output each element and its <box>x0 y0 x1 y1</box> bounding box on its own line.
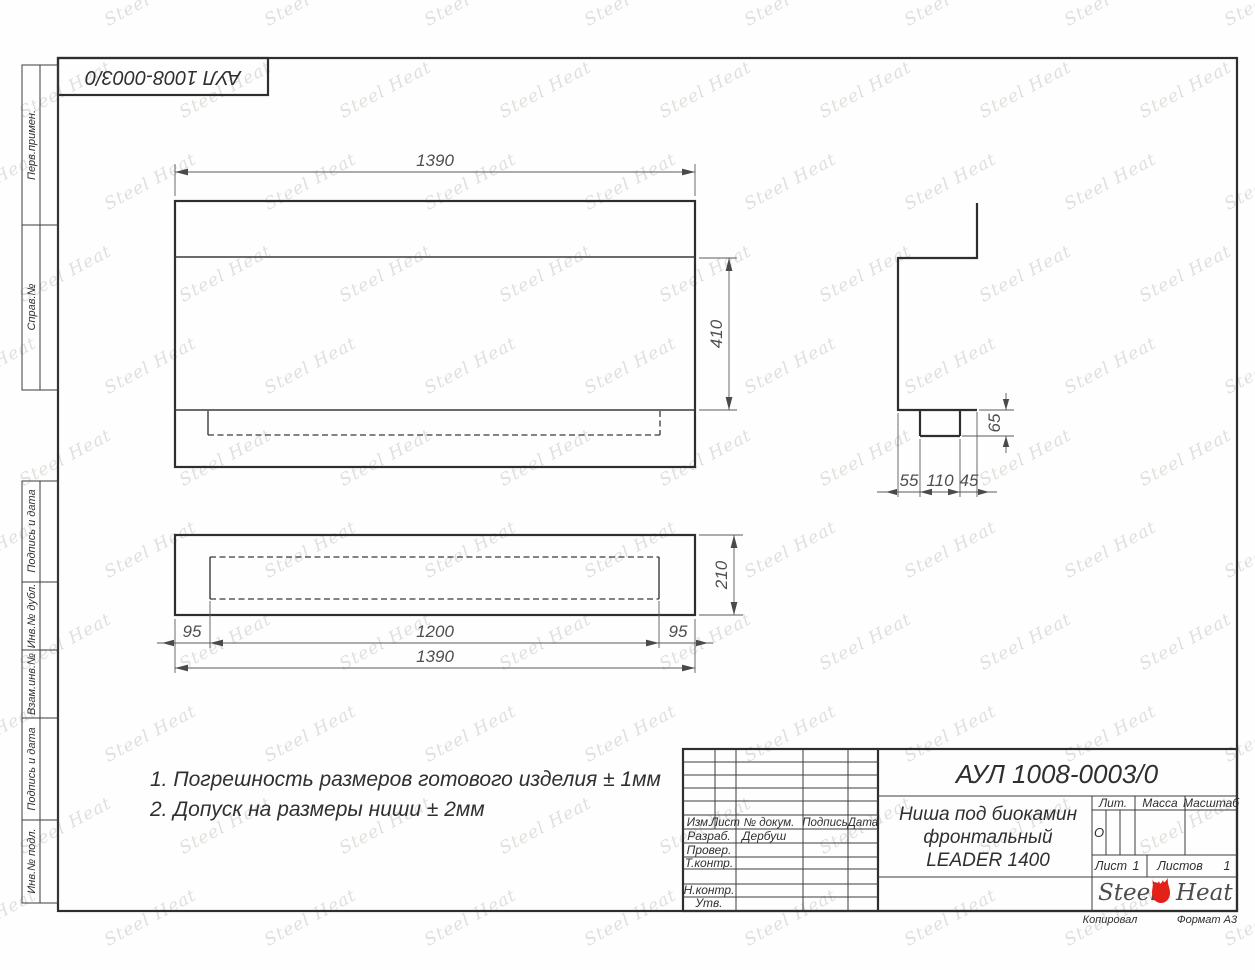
format-label: Формат А3 <box>1177 914 1238 926</box>
notes: 1. Погрешность размеров готового изделия… <box>149 768 661 821</box>
slot-depth-dimension: 65 <box>962 393 1014 453</box>
steelheat-logo: Steel Heat <box>1098 878 1233 906</box>
side-view <box>898 203 977 436</box>
note-line-2: 2. Допуск на размеры ниши ± 2мм <box>149 798 485 821</box>
plan-total-width-value: 1390 <box>416 647 454 666</box>
logo-heat-text: Heat <box>1175 880 1233 906</box>
plan-width-dimensions: 95 1200 95 1390 <box>157 601 713 673</box>
title-block: АУЛ 1008-0003/0 Ниша под биокамин фронта… <box>683 749 1240 911</box>
sheets-value: 1 <box>1224 859 1231 873</box>
note-line-1: 1. Погрешность размеров готового изделия… <box>150 768 661 791</box>
part-title-line-3: LEADER 1400 <box>926 850 1050 871</box>
margin-label-podpis-data-2: Подпись и дата <box>26 727 38 810</box>
margin-label-podpis-data-1: Подпись и дата <box>26 489 38 572</box>
sheets-label: Листов <box>1156 859 1203 873</box>
plan-margin-right-value: 95 <box>669 622 688 641</box>
margin-label-perv-primen: Перв.примен. <box>26 110 38 180</box>
developed-value: Дербуш <box>740 829 786 843</box>
scale-label: Масштаб <box>1183 796 1240 810</box>
plan-view <box>175 535 695 615</box>
developed-label: Разраб. <box>687 829 730 843</box>
lit-label: Лит. <box>1098 796 1127 810</box>
inverted-doc-code-text: АУЛ 1008-0003/0 <box>85 66 242 88</box>
front-view <box>175 201 695 467</box>
margin-label-sprav-no: Справ.№ <box>26 283 38 330</box>
logo-steel-text: Steel <box>1098 880 1158 906</box>
front-width-value: 1390 <box>416 151 454 170</box>
col-doc-label: № докум. <box>744 817 795 829</box>
doc-code-text: АУЛ 1008-0003/0 <box>954 759 1159 789</box>
plan-depth-dimension: 210 <box>699 535 743 615</box>
margin-label-inv-podl: Инв.№ подл. <box>26 828 38 893</box>
approved-label: Утв. <box>694 896 722 910</box>
ncontrol-label: Н.контр. <box>684 883 735 897</box>
opening-height-value: 410 <box>707 319 726 348</box>
plan-depth-value: 210 <box>712 560 731 590</box>
side-slot-width-value: 110 <box>926 471 954 490</box>
col-list-label: Лист <box>709 817 740 829</box>
side-front-offset-value: 55 <box>900 471 919 490</box>
side-back-offset-value: 45 <box>960 471 979 490</box>
part-title-line-2: фронтальный <box>923 827 1053 848</box>
mass-label: Масса <box>1142 796 1178 810</box>
engineering-drawing: АУЛ 1008-0003/0 Перв.примен. Справ.№ Под… <box>0 0 1255 970</box>
opening-height-dimension: 410 <box>699 258 737 410</box>
part-title-line-1: Ниша под биокамин <box>899 804 1078 825</box>
margin-label-inv-dubl: Инв.№ дубл. <box>26 584 38 649</box>
slot-depth-value: 65 <box>985 413 1004 432</box>
sheet-value: 1 <box>1133 859 1140 873</box>
sheet-label: Лист <box>1094 859 1127 873</box>
col-date-label: Дата <box>846 817 878 829</box>
plan-opening-width-value: 1200 <box>416 622 454 641</box>
inverted-doc-code-stamp: АУЛ 1008-0003/0 <box>58 58 268 95</box>
side-bottom-dimensions: 55 110 45 <box>877 412 997 497</box>
front-width-dimension: 1390 <box>175 151 695 196</box>
plan-margin-left-value: 95 <box>183 622 202 641</box>
copied-label: Копировал <box>1083 914 1138 926</box>
margin-label-vzam-inv: Взам.инв.№ <box>26 653 38 715</box>
col-izm-label: Изм. <box>687 817 712 829</box>
footer: Копировал Формат А3 <box>1083 914 1238 926</box>
checked-label: Провер. <box>687 843 732 857</box>
drawing-sheet: Steel HeatSteel HeatSteel HeatSteel Heat… <box>0 0 1255 970</box>
margin-boxes: Перв.примен. Справ.№ Подпись и дата Инв.… <box>22 65 58 903</box>
col-sign-label: Подпись <box>802 817 848 829</box>
lit-value: О <box>1094 825 1104 840</box>
tcontrol-label: Т.контр. <box>685 856 733 870</box>
